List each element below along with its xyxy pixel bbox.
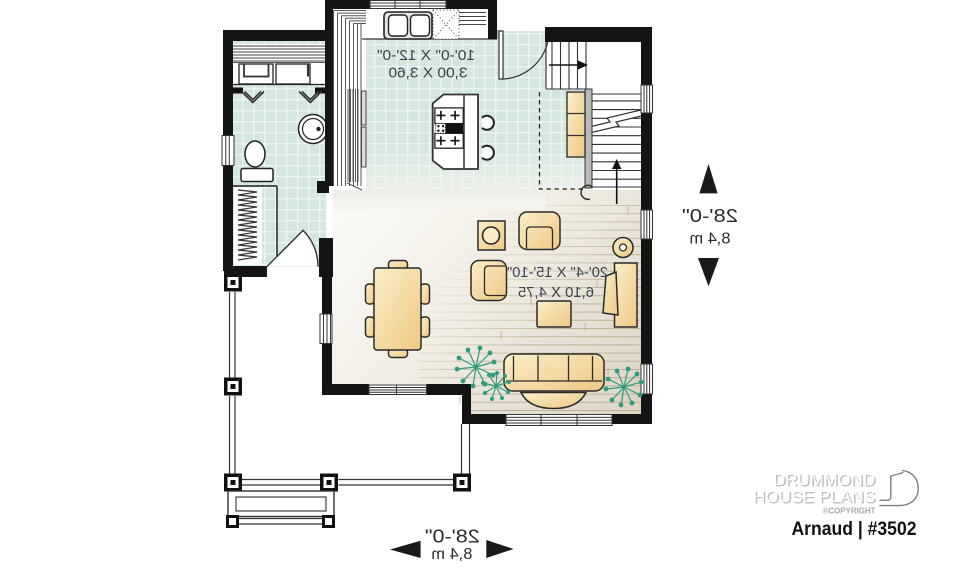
svg-text:20'-4" X 15'-10": 20'-4" X 15'-10" — [507, 264, 608, 281]
svg-text:Arnaud | #3502: Arnaud | #3502 — [792, 519, 917, 540]
svg-text:6,10 X 4,75: 6,10 X 4,75 — [518, 284, 594, 301]
svg-text:8,4 m: 8,4 m — [690, 231, 731, 248]
svg-text:28'-0": 28'-0" — [682, 206, 738, 226]
svg-text:10'-0" X 12'-0": 10'-0" X 12'-0" — [377, 47, 475, 64]
svg-text:8,4 m: 8,4 m — [431, 546, 472, 563]
svg-text:28'-0": 28'-0" — [425, 527, 480, 547]
svg-text:HOUSE PLANS: HOUSE PLANS — [753, 487, 876, 506]
svg-text:3,00 X 3,60: 3,00 X 3,60 — [389, 65, 468, 82]
svg-text:©COPYRIGHT: ©COPYRIGHT — [823, 507, 876, 516]
